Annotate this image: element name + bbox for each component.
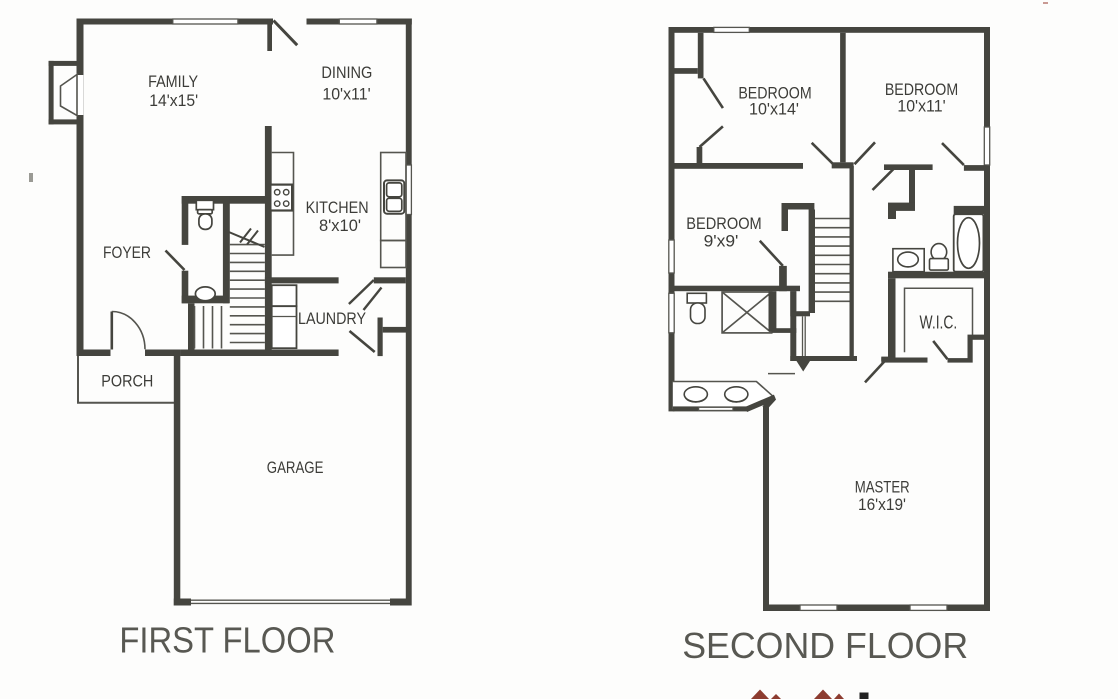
svg-text:9'x9': 9'x9' [704, 232, 739, 251]
svg-text:10'x14': 10'x14' [749, 99, 799, 118]
svg-text:LAUNDRY: LAUNDRY [298, 309, 366, 328]
svg-text:PORCH: PORCH [101, 372, 153, 391]
svg-text:KITCHEN: KITCHEN [306, 198, 369, 217]
svg-text:DINING: DINING [321, 63, 372, 82]
svg-text:FIRST FLOOR: FIRST FLOOR [119, 620, 335, 661]
svg-text:FOYER: FOYER [103, 243, 151, 262]
svg-text:10'x11': 10'x11' [897, 97, 945, 116]
svg-text:MASTER: MASTER [855, 477, 910, 496]
svg-text:8'x10': 8'x10' [319, 216, 361, 235]
svg-text:14'x15': 14'x15' [149, 91, 198, 110]
svg-text:GARAGE: GARAGE [267, 458, 324, 477]
svg-text:W.I.C.: W.I.C. [920, 311, 958, 332]
svg-text:SECOND FLOOR: SECOND FLOOR [682, 625, 968, 666]
svg-text:10'x11': 10'x11' [322, 84, 370, 103]
svg-text:BEDROOM: BEDROOM [686, 214, 761, 233]
svg-text:16'x19': 16'x19' [858, 495, 906, 514]
svg-text:FAMILY: FAMILY [148, 72, 198, 91]
